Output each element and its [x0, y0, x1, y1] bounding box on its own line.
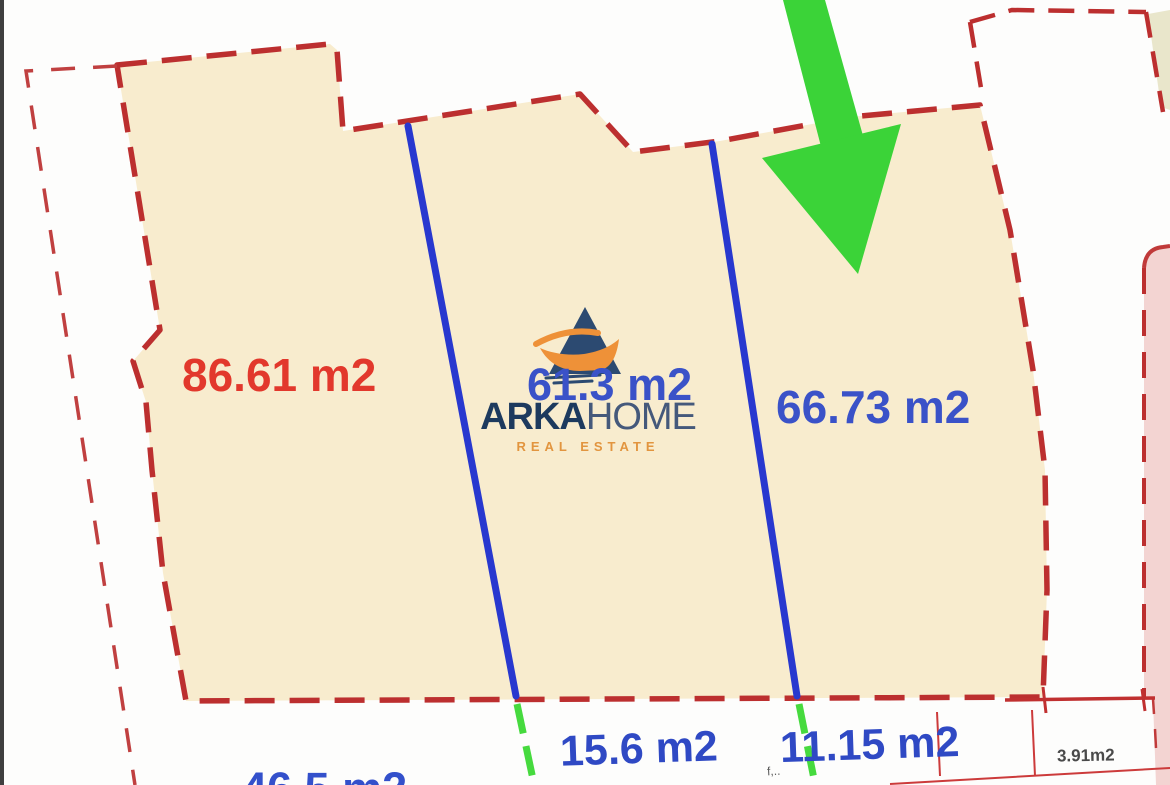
area-label-plot-bottom-left: 46.5 m2 [242, 766, 407, 785]
plot-plan: ARKAHOME REAL ESTATE 86.61 m2 61.3 m2 66… [0, 0, 1170, 785]
area-label-plot-small: 3.91m2 [1057, 746, 1115, 764]
area-label-plot-2: 61.3 m2 [527, 362, 692, 407]
base-line [1005, 698, 1155, 700]
divider-extension-1 [517, 704, 534, 784]
scan-edge-strip [0, 0, 4, 785]
site-boundary-left [26, 66, 135, 785]
area-label-plot-bottom-mid: 15.6 m2 [559, 725, 718, 773]
watermark-tagline: REAL ESTATE [468, 440, 708, 453]
area-label-plot-1: 86.61 m2 [182, 352, 376, 398]
area-label-plot-3: 66.73 m2 [776, 384, 970, 430]
parcel-pink [1144, 247, 1170, 785]
tiny-survey-note: f,.. [767, 764, 781, 779]
area-label-plot-bottom-right: 11.15 m2 [779, 721, 960, 770]
neighbor-boundary-top-right [970, 10, 1163, 112]
